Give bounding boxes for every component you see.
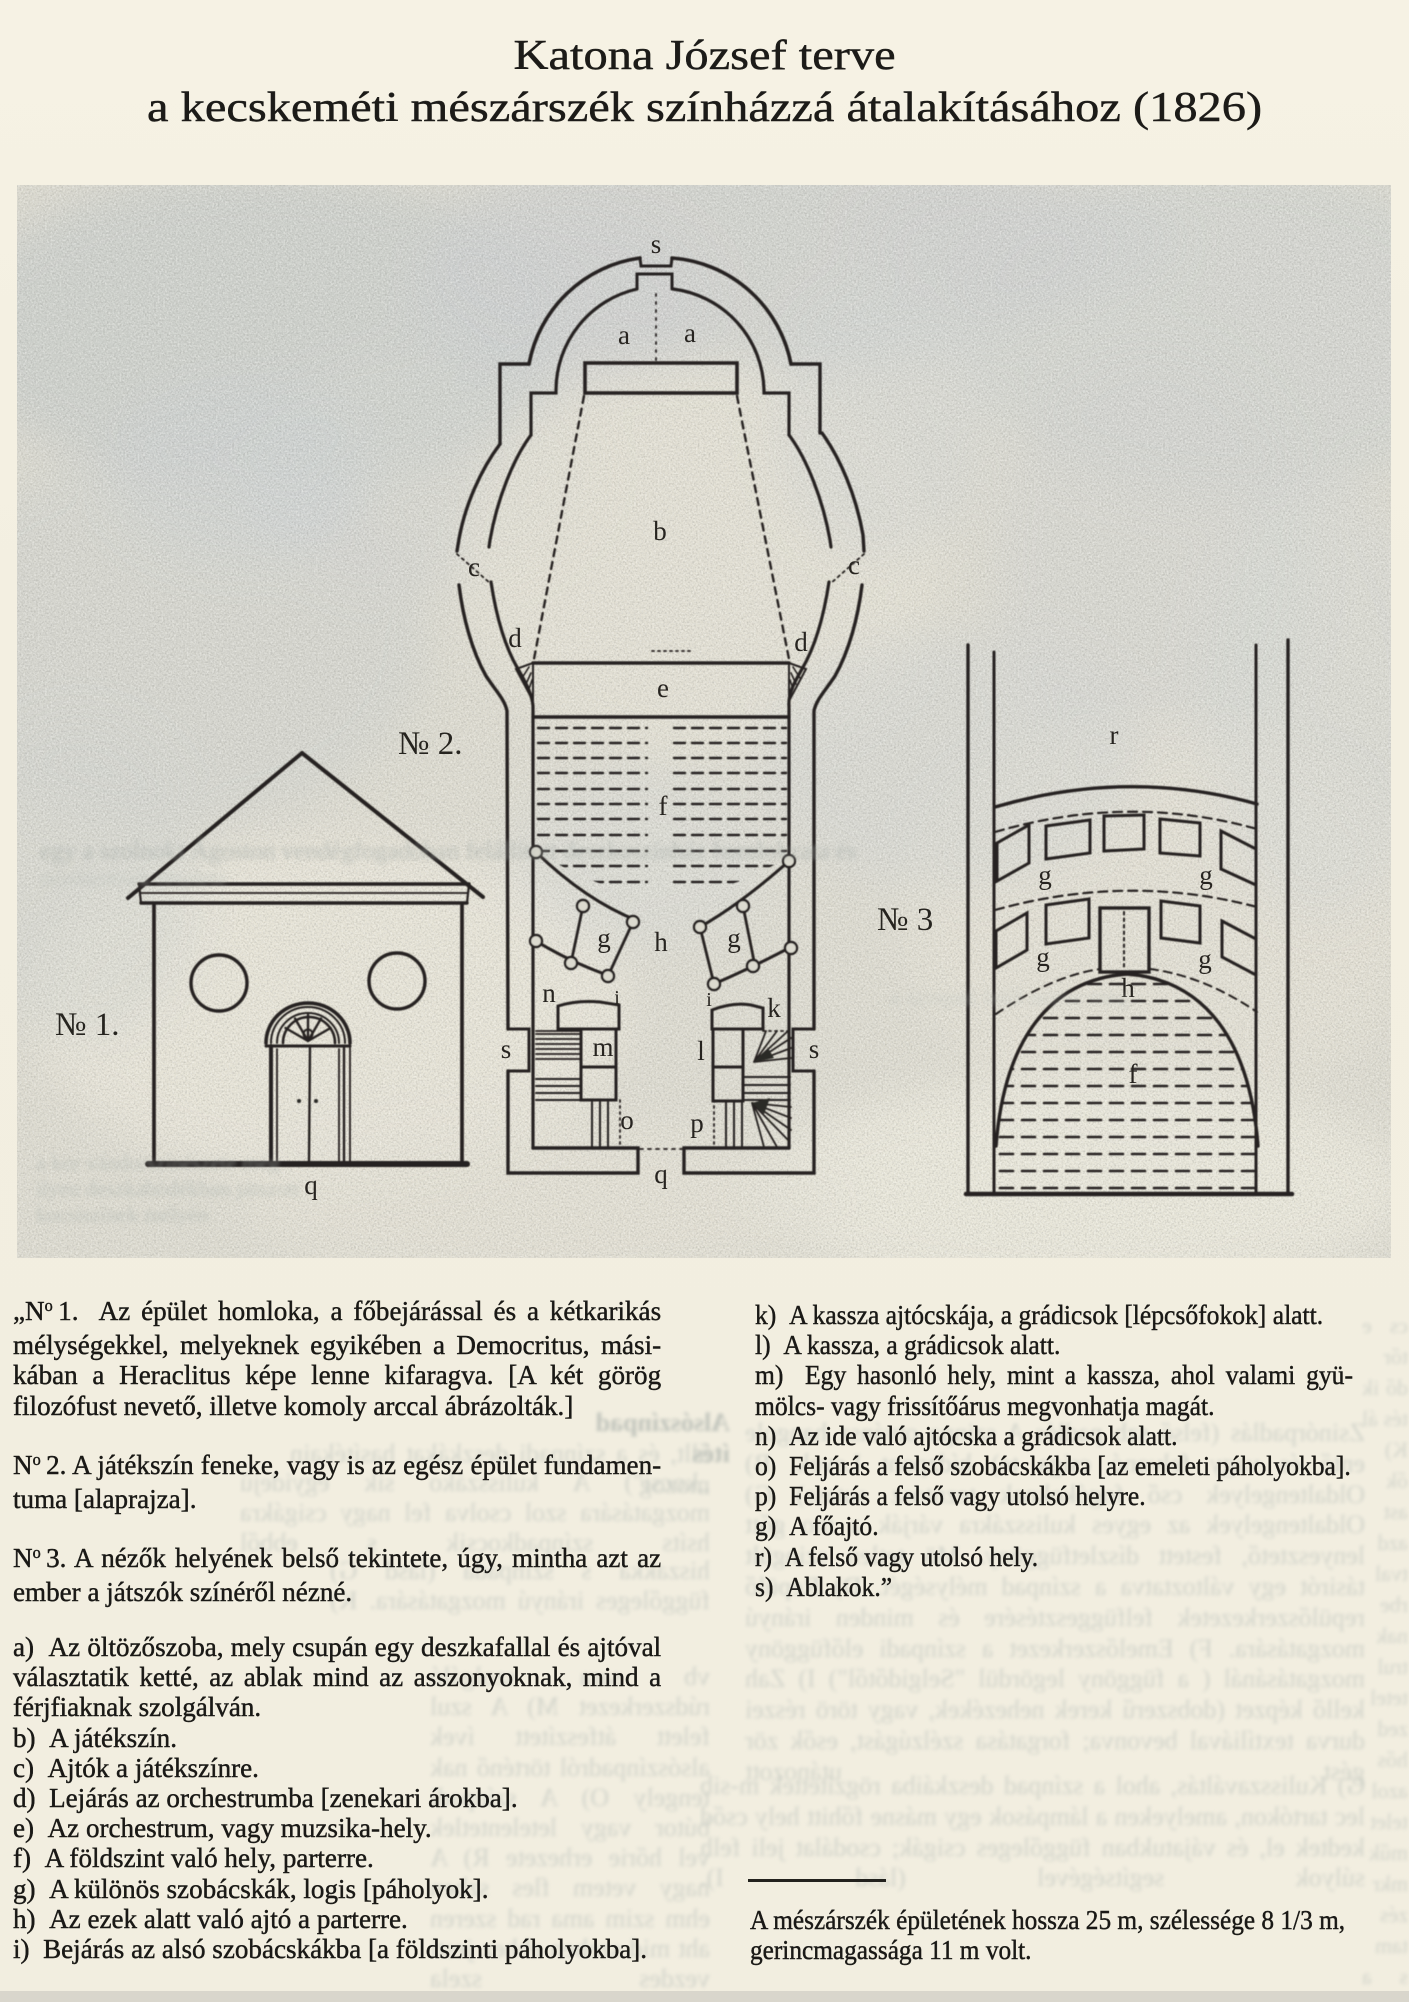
svg-text:s: s: [501, 1034, 512, 1064]
svg-text:d: d: [794, 627, 808, 657]
svg-text:c: c: [468, 552, 480, 582]
svg-text:f: f: [659, 791, 668, 821]
svg-text:p: p: [690, 1108, 704, 1138]
svg-text:g: g: [1198, 944, 1212, 974]
svg-text:g: g: [727, 923, 741, 953]
svg-text:d: d: [508, 623, 522, 653]
svg-text:o: o: [620, 1105, 634, 1135]
svg-text:№ 2.: № 2.: [398, 726, 463, 762]
svg-text:b: b: [653, 516, 667, 546]
svg-text:i: i: [706, 989, 712, 1011]
svg-text:g: g: [597, 923, 611, 953]
svg-text:g: g: [1199, 860, 1213, 890]
svg-text:i: i: [614, 987, 620, 1009]
svg-text:k: k: [767, 993, 781, 1023]
svg-text:f: f: [1129, 1059, 1138, 1089]
svg-text:r: r: [1110, 720, 1119, 750]
svg-text:s: s: [809, 1034, 820, 1064]
svg-text:n: n: [542, 978, 556, 1008]
svg-text:q: q: [654, 1159, 668, 1189]
svg-text:h: h: [654, 927, 668, 957]
svg-text:№ 3: № 3: [877, 902, 933, 938]
svg-text:s: s: [651, 229, 662, 259]
svg-text:g: g: [1038, 860, 1052, 890]
svg-text:a: a: [684, 318, 696, 348]
svg-text:a: a: [618, 320, 630, 350]
svg-text:c: c: [848, 550, 860, 580]
svg-text:l: l: [697, 1036, 705, 1066]
svg-text:m: m: [592, 1032, 613, 1062]
svg-text:e: e: [657, 673, 669, 703]
svg-text:g: g: [1036, 942, 1050, 972]
svg-text:№ 1.: № 1.: [55, 1007, 120, 1043]
